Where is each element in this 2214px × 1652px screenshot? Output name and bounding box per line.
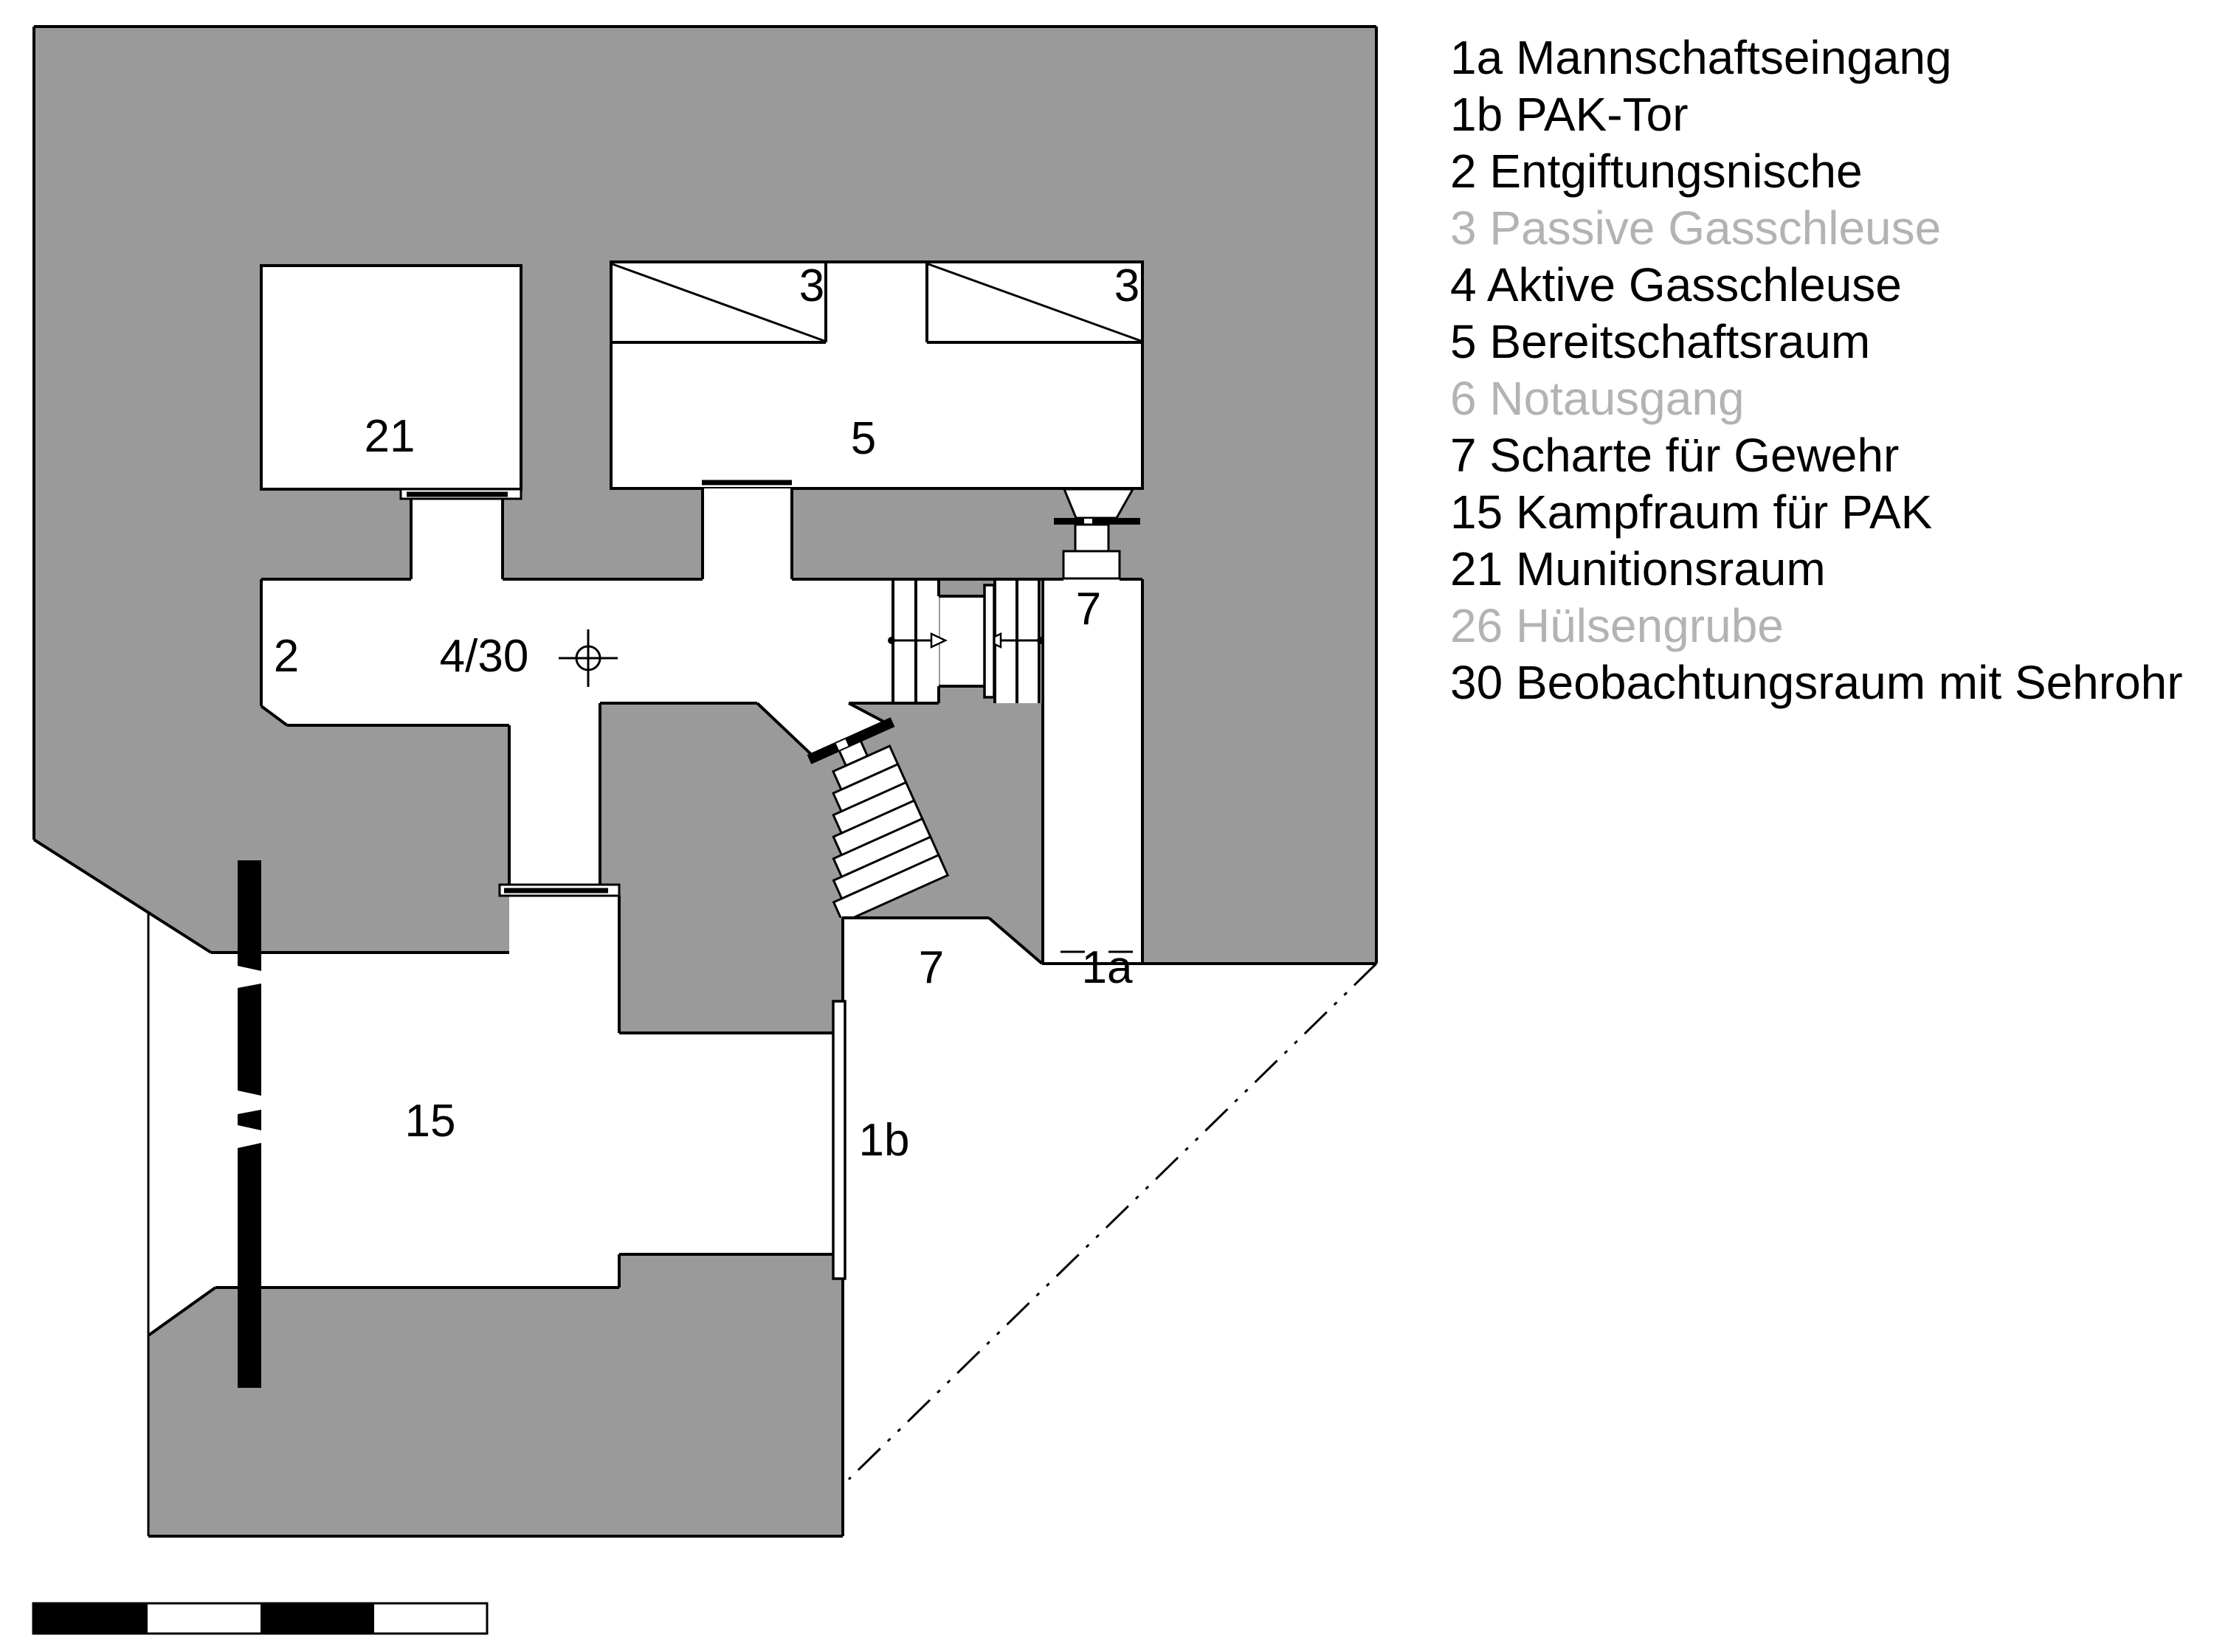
label-room-3b: 3: [1114, 260, 1139, 311]
connector-5: [703, 488, 792, 579]
connector-21: [411, 489, 503, 579]
legend-item-1b: 1b PAK-Tor: [1450, 86, 2196, 143]
door-leaf-gaslock: [984, 585, 994, 697]
door-leaf-1b-pak-tor: [833, 1001, 845, 1279]
corridor-1a: [1043, 579, 1142, 964]
legend-item-7: 7 Scharte für Gewehr: [1450, 427, 2196, 484]
legend-item-4: 4 Aktive Gasschleuse: [1450, 257, 2196, 314]
bunker-floorplan-page: 21 5 3 3 2 4/30 7 7 1a 1b 15 1a Mannscha…: [0, 0, 2214, 1652]
legend-item-30: 30 Beobachtungsraum mit Sehrohr: [1450, 654, 2196, 711]
legend-item-3: 3 Passive Gasschleuse: [1450, 200, 2196, 257]
section-line: [849, 964, 1376, 1479]
legend-item-15: 15 Kampfraum für PAK: [1450, 484, 2196, 541]
legend-item-6: 6 Notausgang: [1450, 370, 2196, 427]
label-room-15: 15: [405, 1096, 456, 1147]
legend-item-21: 21 Munitionsraum: [1450, 541, 2196, 598]
connector-15: [509, 703, 600, 896]
legend-item-26: 26 Hülsengrube: [1450, 598, 2196, 654]
label-room-4-30: 4/30: [440, 631, 529, 682]
scale-bar: [33, 1603, 487, 1634]
exterior-strip: [148, 911, 238, 1335]
label-door-1b: 1b: [859, 1115, 910, 1166]
label-entrance-1a: 1a: [1082, 942, 1133, 993]
legend-item-2: 2 Entgiftungsnische: [1450, 143, 2196, 200]
passage-1b: [619, 1033, 843, 1254]
label-scharte-stairs: 7: [919, 942, 944, 993]
legend-item-1a: 1a Mannschaftseingang: [1450, 30, 2196, 86]
armored-wall-15: [238, 860, 261, 1388]
embrasure-slot: [1084, 519, 1092, 524]
wall-opening: [940, 596, 986, 686]
legend-item-5: 5 Bereitschaftsraum: [1450, 314, 2196, 370]
label-room-21: 21: [365, 411, 415, 462]
label-room-2: 2: [274, 631, 299, 682]
label-scharte-top: 7: [1076, 584, 1101, 635]
concrete-mass: [34, 27, 1376, 1536]
room-5-bereitschaftsraum: [611, 262, 1142, 488]
label-room-3a: 3: [799, 260, 824, 311]
legend: 1a Mannschaftseingang 1b PAK-Tor 2 Entgi…: [1450, 30, 2196, 711]
label-room-5: 5: [851, 413, 876, 464]
